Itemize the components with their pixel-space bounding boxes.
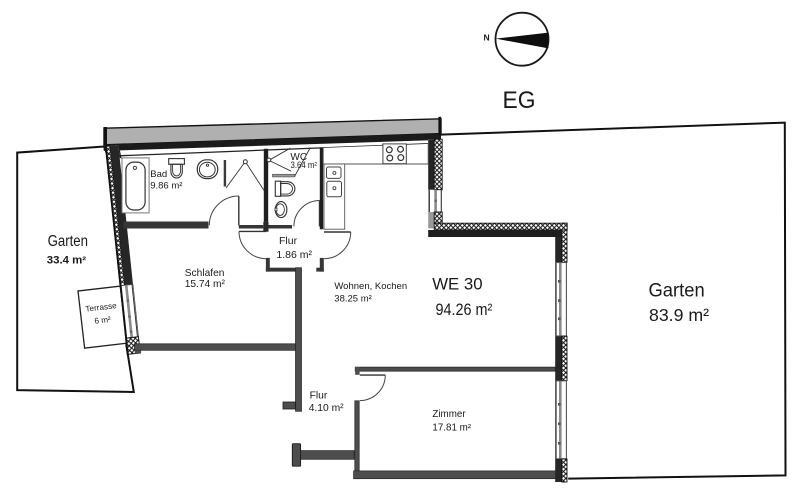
svg-text:15.74 m²: 15.74 m² (185, 279, 226, 290)
svg-text:EG: EG (503, 87, 536, 114)
svg-text:38.25 m²: 38.25 m² (334, 294, 372, 305)
svg-text:Wohnen, Kochen: Wohnen, Kochen (334, 281, 407, 292)
svg-text:83.9 m²: 83.9 m² (649, 305, 709, 325)
svg-text:1.86 m²: 1.86 m² (276, 249, 312, 261)
svg-text:6 m²: 6 m² (94, 315, 112, 326)
svg-text:9.86 m²: 9.86 m² (150, 180, 182, 191)
svg-text:Garten: Garten (649, 279, 705, 301)
svg-text:Flur: Flur (279, 235, 298, 247)
svg-text:4.10 m²: 4.10 m² (309, 403, 344, 414)
svg-text:Bad: Bad (150, 169, 167, 180)
svg-text:17.81 m²: 17.81 m² (432, 423, 471, 434)
svg-text:Garten: Garten (48, 233, 88, 250)
svg-text:3.64 m²: 3.64 m² (291, 160, 318, 170)
svg-text:N: N (484, 33, 490, 43)
svg-text:Zimmer: Zimmer (432, 409, 466, 420)
svg-text:94.26 m²: 94.26 m² (436, 301, 493, 319)
svg-text:WE 30: WE 30 (432, 275, 482, 294)
svg-text:Schlafen: Schlafen (185, 268, 225, 279)
svg-text:Flur: Flur (310, 390, 328, 401)
svg-text:33.4 m²: 33.4 m² (47, 254, 87, 266)
